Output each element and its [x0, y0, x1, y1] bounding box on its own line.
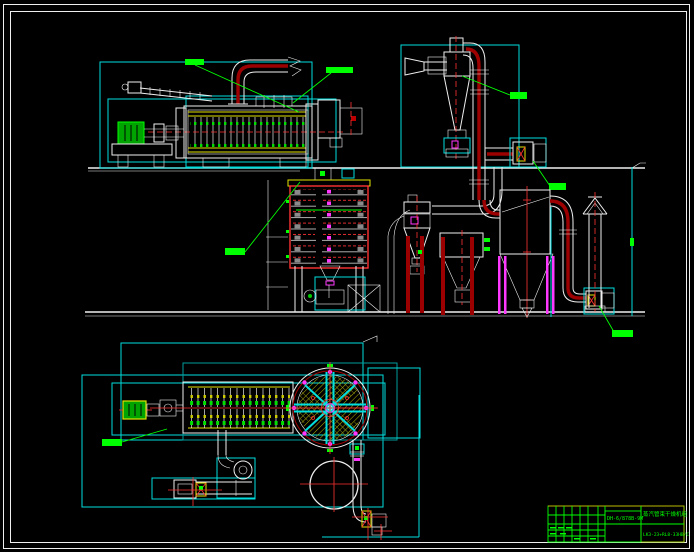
- title-block: DH-6/878B-9M 蒸汽管束干燥机组 LK3-23+RL8-33HB/C: [548, 506, 689, 542]
- small-cyclone: [388, 195, 430, 314]
- cyclone-plan-circle: [300, 457, 368, 512]
- exhaust-fan-1: [510, 138, 546, 167]
- callout-label: [225, 248, 245, 255]
- drawing-code-text: DH-6/878B-9M: [607, 516, 643, 522]
- callout-label: [510, 92, 527, 99]
- plan-pipe-right: [350, 440, 392, 540]
- motor-plan: [119, 400, 183, 419]
- stack: [583, 192, 607, 312]
- screw-feeder: [122, 82, 212, 101]
- callout-label: [326, 67, 353, 73]
- plan-pipe-left: [152, 430, 255, 506]
- hopper: [440, 230, 490, 315]
- spec-code-text: LK3-23+RL8-33HB/C: [643, 532, 689, 538]
- view-cyclone-system: [401, 36, 566, 200]
- discharge-end: [318, 100, 362, 147]
- dryer-motor: [112, 122, 184, 167]
- drawing-title-text: 蒸汽管束干燥机组: [643, 510, 688, 518]
- deck-dryer: [266, 168, 380, 312]
- cad-canvas[interactable]: DH-6/878B-9M 蒸汽管束干燥机组 LK3-23+RL8-33HB/C: [0, 0, 694, 552]
- callout-label: [549, 183, 566, 190]
- callout-label: [612, 330, 633, 337]
- cyclone: [444, 36, 470, 160]
- callout-label: [102, 439, 122, 446]
- dryer-drum: [148, 104, 346, 160]
- callout-label: [185, 59, 204, 65]
- bag-filter: [479, 186, 586, 318]
- view-plan: [82, 336, 420, 540]
- view-dryer-elevation: [100, 57, 362, 168]
